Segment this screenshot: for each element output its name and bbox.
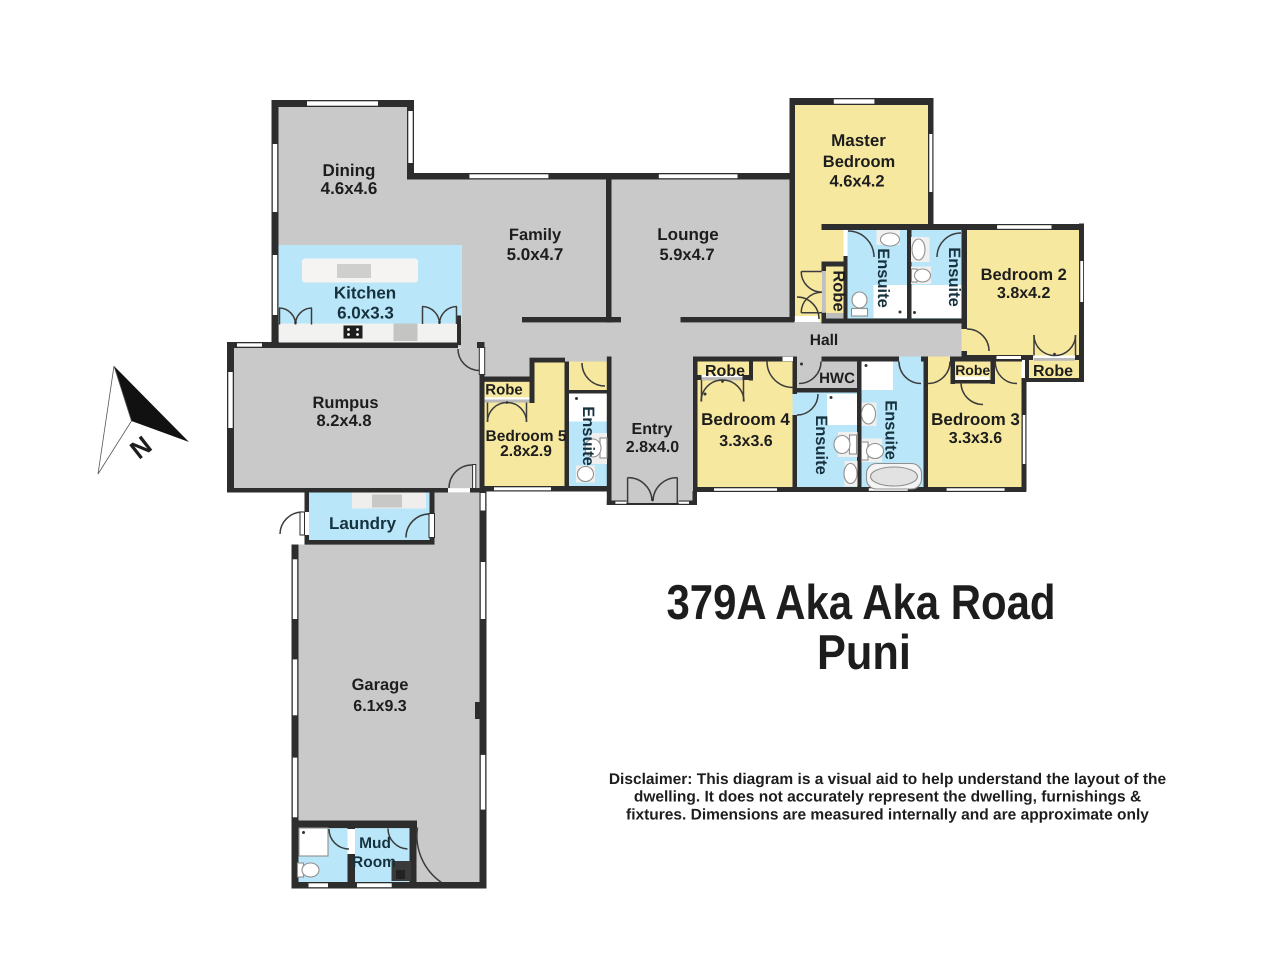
svg-text:Family: Family [509,226,562,244]
svg-text:Ensuite: Ensuite [882,400,900,460]
svg-text:Dining: Dining [323,161,376,180]
svg-text:Ensuite: Ensuite [579,406,597,466]
svg-text:8.2x4.8: 8.2x4.8 [316,412,371,430]
svg-text:6.1x9.3: 6.1x9.3 [353,698,406,715]
svg-text:Ensuite: Ensuite [874,248,892,308]
svg-text:Ensuite: Ensuite [812,415,830,475]
svg-text:3.3x3.6: 3.3x3.6 [719,433,772,450]
svg-text:Robe: Robe [830,270,848,311]
svg-text:5.9x4.7: 5.9x4.7 [659,246,714,264]
svg-text:Bedroom 3: Bedroom 3 [931,410,1020,429]
svg-text:Ensuite: Ensuite [945,247,963,307]
svg-text:Mud: Mud [359,835,391,852]
svg-text:Garage: Garage [352,676,409,694]
svg-text:Lounge: Lounge [657,225,718,244]
svg-text:Bedroom 2: Bedroom 2 [981,266,1067,284]
svg-text:5.0x4.7: 5.0x4.7 [507,245,564,264]
svg-text:Hall: Hall [810,332,838,349]
svg-text:4.6x4.6: 4.6x4.6 [321,179,378,198]
svg-text:4.6x4.2: 4.6x4.2 [829,173,884,191]
svg-text:3.3x3.6: 3.3x3.6 [949,430,1002,447]
svg-text:Robe: Robe [485,382,523,399]
svg-text:HWC: HWC [819,370,855,387]
svg-text:Robe: Robe [1033,363,1073,380]
svg-text:2.8x4.0: 2.8x4.0 [626,439,679,456]
svg-text:dwelling. It does not accurate: dwelling. It does not accurately represe… [634,789,1141,806]
svg-text:Bedroom: Bedroom [823,153,895,171]
svg-text:Disclaimer: This diagram is a: Disclaimer: This diagram is a visual aid… [609,771,1167,788]
svg-text:Room: Room [352,854,396,871]
svg-text:Bedroom 4: Bedroom 4 [701,410,790,429]
svg-text:Robe: Robe [955,362,990,378]
svg-text:379A Aka Aka Road: 379A Aka Aka Road [667,576,1056,630]
svg-text:Rumpus: Rumpus [313,394,379,412]
svg-text:Kitchen: Kitchen [334,284,396,303]
svg-text:Master: Master [831,131,886,150]
svg-text:2.8x2.9: 2.8x2.9 [500,443,552,460]
svg-text:fixtures. Dimensions are measu: fixtures. Dimensions are measured intern… [626,807,1149,824]
svg-text:3.8x4.2: 3.8x4.2 [997,285,1050,302]
svg-text:Entry: Entry [632,421,673,438]
svg-text:Robe: Robe [705,363,745,380]
svg-text:Laundry: Laundry [329,514,397,533]
svg-text:Puni: Puni [817,626,911,680]
svg-text:6.0x3.3: 6.0x3.3 [337,304,394,323]
